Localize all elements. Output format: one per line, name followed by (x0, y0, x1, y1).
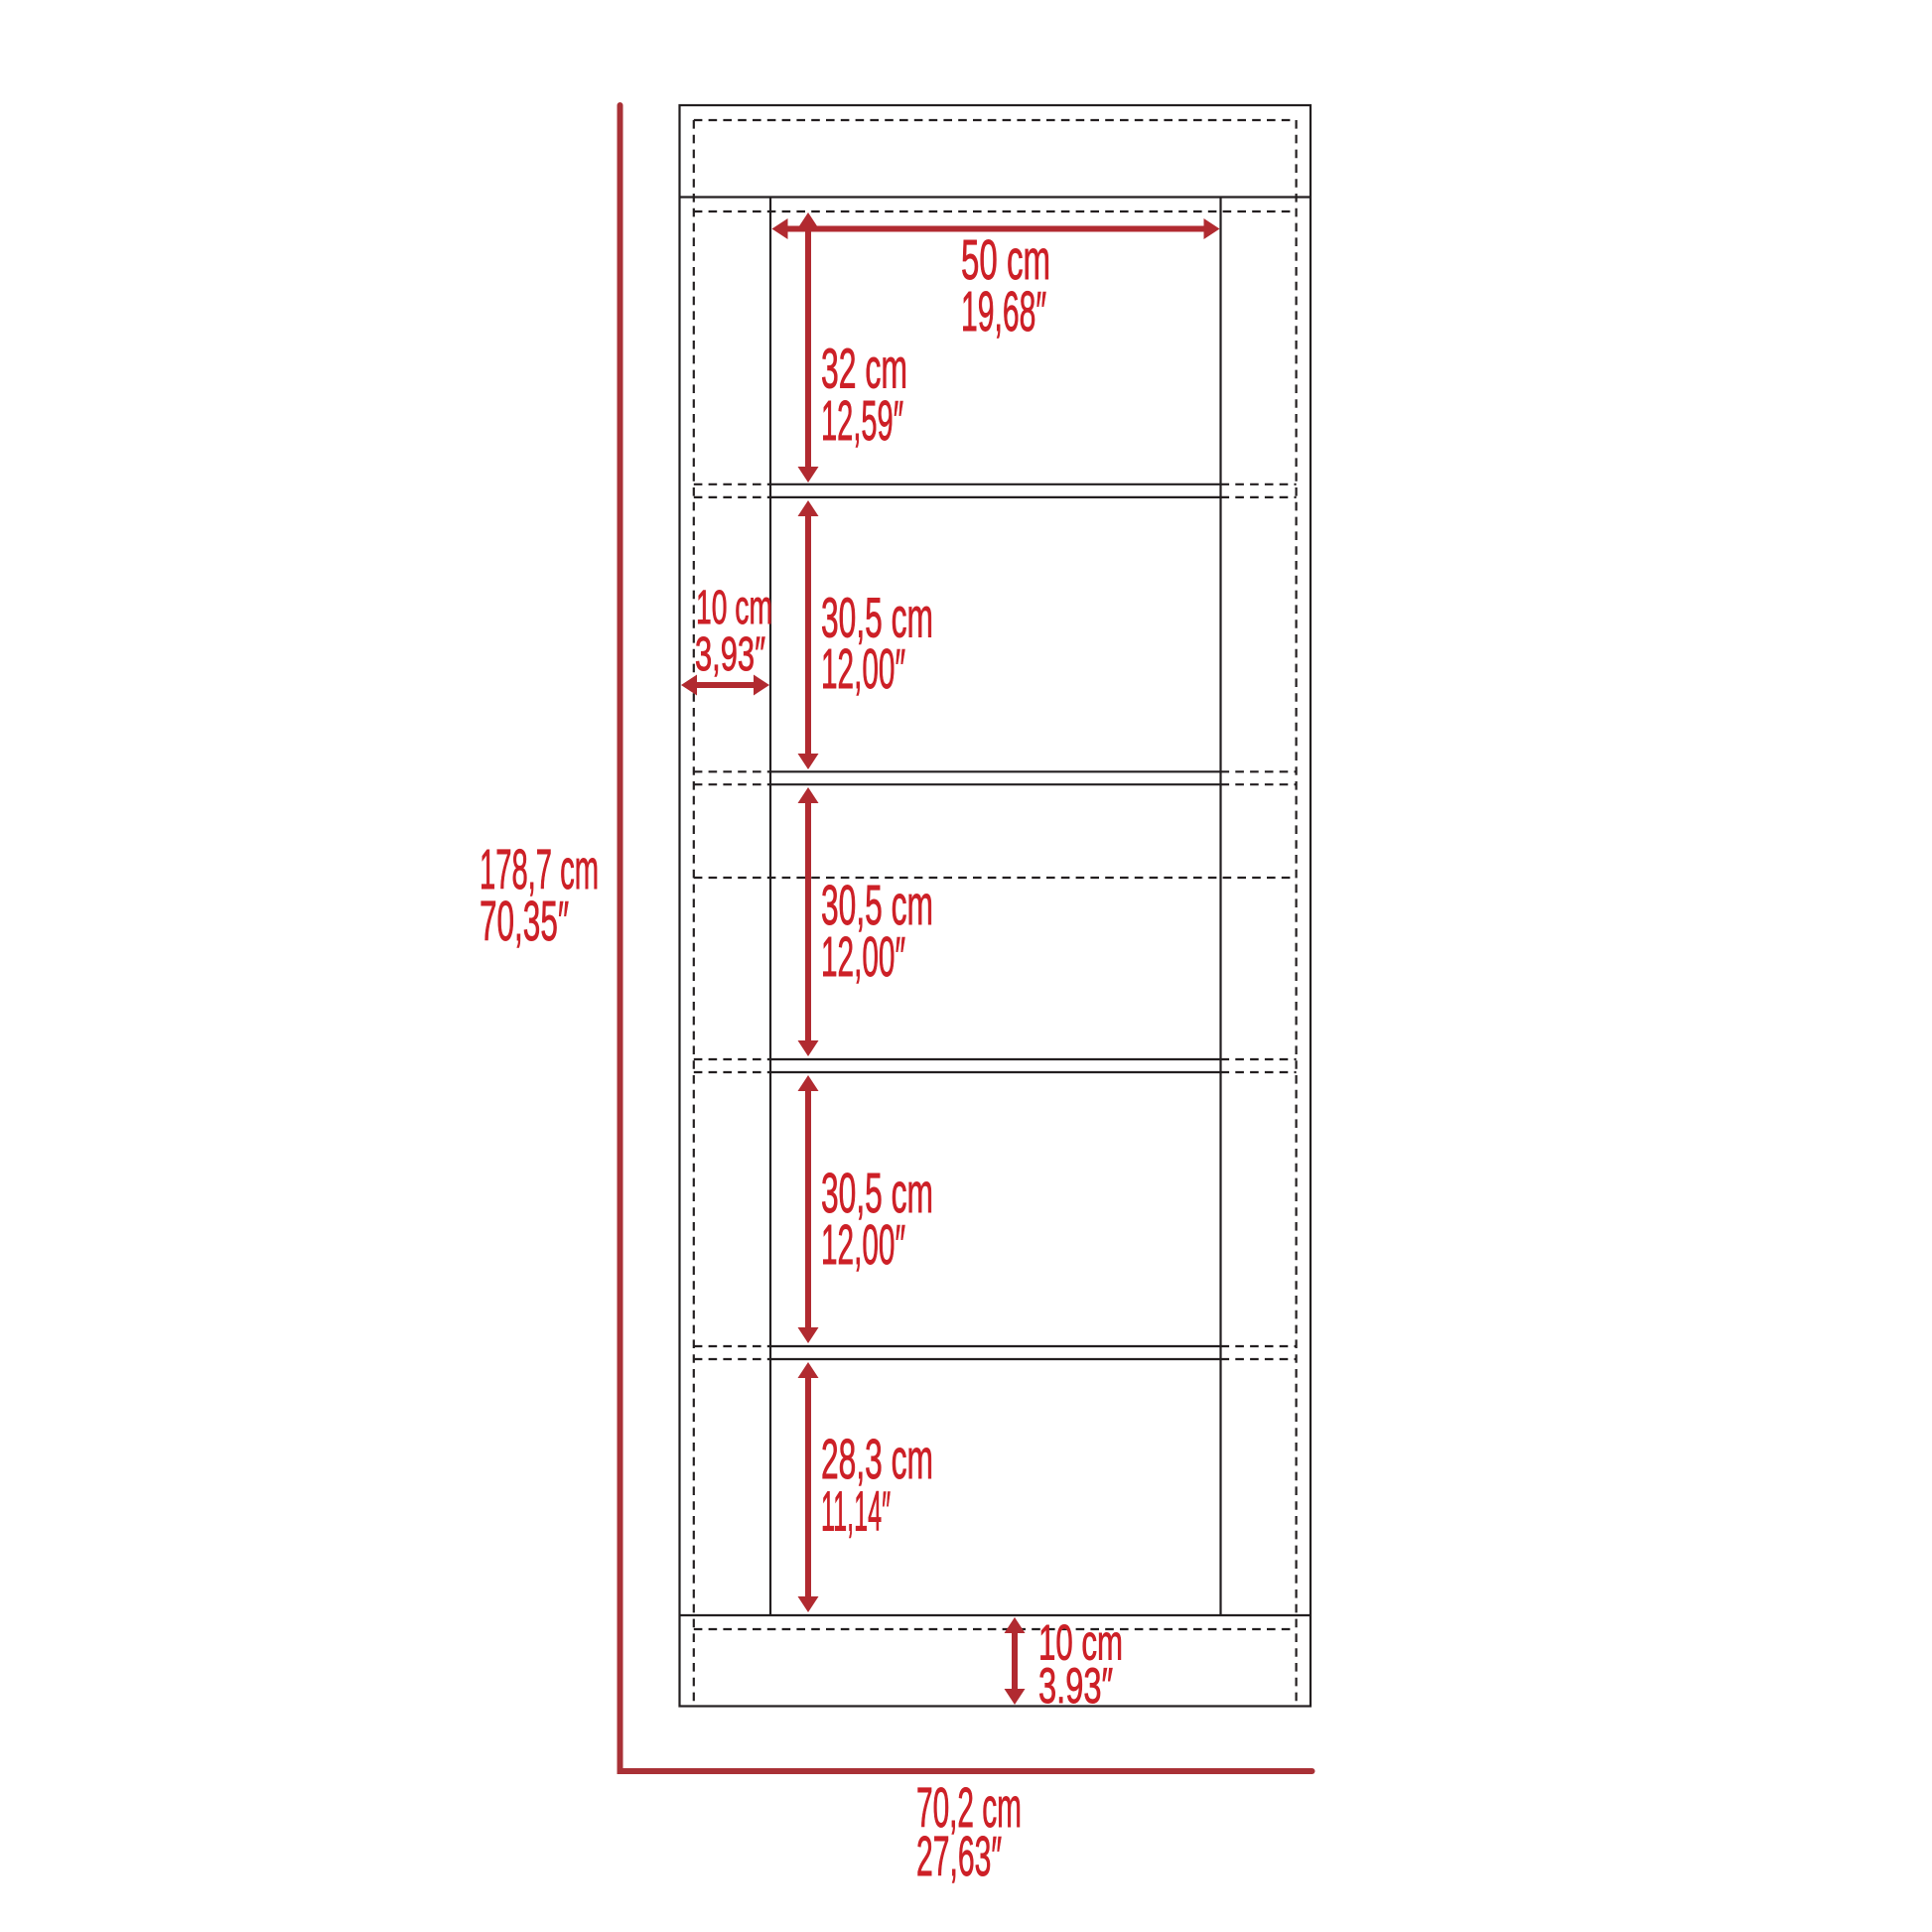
svg-text:11,14″: 11,14″ (821, 1480, 891, 1544)
svg-text:12,00″: 12,00″ (821, 1213, 905, 1277)
svg-text:12,00″: 12,00″ (821, 925, 905, 989)
svg-text:12,59″: 12,59″ (821, 389, 903, 453)
svg-text:70,35″: 70,35″ (480, 890, 569, 953)
svg-text:12,00″: 12,00″ (821, 637, 905, 701)
svg-text:27,63″: 27,63″ (916, 1825, 1002, 1888)
svg-text:19,68″: 19,68″ (961, 280, 1046, 344)
svg-text:3,93″: 3,93″ (695, 628, 765, 681)
svg-text:3.93″: 3.93″ (1038, 1658, 1113, 1714)
svg-text:10 cm: 10 cm (696, 582, 772, 634)
